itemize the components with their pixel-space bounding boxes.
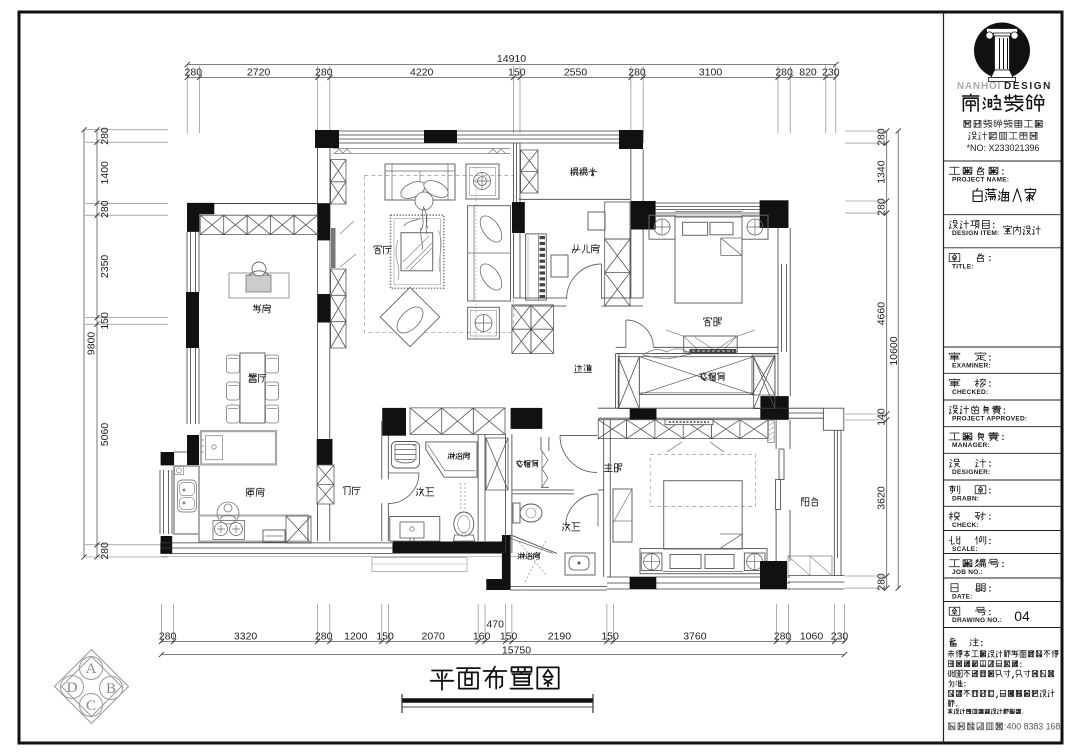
svg-text:150: 150 [601, 631, 619, 643]
svg-text:280: 280 [876, 128, 888, 146]
svg-text:150: 150 [99, 312, 111, 330]
svg-text:2350: 2350 [99, 255, 111, 279]
svg-text:150: 150 [508, 67, 526, 79]
svg-text:MANAGER:: MANAGER: [952, 442, 990, 449]
svg-text::: : [980, 638, 983, 648]
svg-text:280: 280 [99, 127, 111, 145]
svg-text:280: 280 [876, 198, 888, 216]
svg-text:D: D [67, 680, 78, 696]
svg-text:SCALE:: SCALE: [952, 546, 978, 553]
svg-text::: : [963, 680, 966, 689]
svg-text::400 8383 168: :400 8383 168 [1004, 722, 1060, 732]
svg-text:1200: 1200 [344, 631, 368, 643]
svg-text:EXAMINER:: EXAMINER: [952, 363, 991, 370]
svg-text::: : [992, 220, 995, 230]
svg-text:3320: 3320 [234, 631, 258, 643]
svg-text::: : [1019, 660, 1022, 669]
svg-text:.: . [956, 699, 958, 708]
svg-text:280: 280 [159, 631, 177, 643]
svg-text::: : [988, 253, 991, 263]
svg-text:14910: 14910 [497, 53, 526, 65]
svg-text:3100: 3100 [699, 67, 723, 79]
svg-text:DESIGN ITEM:: DESIGN ITEM: [952, 230, 999, 237]
svg-text:B: B [106, 681, 116, 697]
svg-text:TITLE:: TITLE: [952, 263, 974, 270]
svg-text:140: 140 [876, 408, 888, 426]
svg-text::: : [1001, 166, 1004, 176]
svg-text:280: 280 [99, 200, 111, 218]
svg-text:470: 470 [486, 619, 504, 631]
svg-text:C: C [86, 698, 96, 714]
svg-text:DRAWING NO.:: DRAWING NO.: [952, 617, 1002, 624]
svg-text:NANHOI: NANHOI [957, 81, 1001, 92]
svg-text:280: 280 [876, 573, 888, 591]
svg-text:4220: 4220 [410, 67, 434, 79]
svg-text::: : [1003, 405, 1006, 415]
svg-text:820: 820 [799, 67, 817, 79]
svg-text:DESIGNER:: DESIGNER: [952, 469, 990, 476]
svg-text:CHECKED:: CHECKED: [952, 389, 988, 396]
svg-text:150: 150 [376, 631, 394, 643]
svg-text::: : [988, 607, 991, 617]
svg-text:160: 160 [473, 631, 491, 643]
svg-text:280: 280 [315, 631, 333, 643]
svg-text::: : [988, 352, 991, 362]
svg-text:PROJECT APPROVED:: PROJECT APPROVED: [952, 416, 1027, 423]
svg-text::: : [988, 379, 991, 389]
svg-text:2070: 2070 [422, 631, 446, 643]
svg-text::: : [988, 583, 991, 593]
svg-text:JOB NO.:: JOB NO.: [952, 569, 983, 576]
svg-text:DATE:: DATE: [952, 594, 973, 601]
svg-text:DRABN:: DRABN: [952, 496, 979, 503]
svg-text:04: 04 [1014, 608, 1030, 624]
svg-text:280: 280 [628, 67, 646, 79]
svg-text:5060: 5060 [99, 423, 111, 447]
svg-text:CHECK:: CHECK: [952, 522, 979, 529]
svg-text:10600: 10600 [888, 336, 900, 365]
svg-text::: : [1001, 432, 1004, 442]
svg-text:280: 280 [315, 67, 333, 79]
svg-text::: : [988, 459, 991, 469]
svg-text:280: 280 [775, 67, 793, 79]
svg-text:PROJECT NAME:: PROJECT NAME: [952, 177, 1009, 184]
svg-text:2720: 2720 [247, 67, 271, 79]
svg-text::: : [988, 536, 991, 546]
svg-text::: : [988, 512, 991, 522]
svg-text:DESIGN: DESIGN [1004, 81, 1052, 92]
svg-text:150: 150 [500, 631, 518, 643]
svg-text:230: 230 [822, 67, 840, 79]
svg-text:280: 280 [185, 67, 203, 79]
svg-text:2190: 2190 [548, 631, 572, 643]
svg-text:280: 280 [774, 631, 792, 643]
svg-text:15750: 15750 [502, 645, 531, 657]
svg-text:230: 230 [831, 631, 849, 643]
svg-text:1400: 1400 [99, 161, 111, 185]
svg-text::: : [988, 485, 991, 495]
svg-text:280: 280 [99, 542, 111, 560]
svg-text:1060: 1060 [800, 631, 824, 643]
svg-text:*NO: X233021396: *NO: X233021396 [966, 143, 1039, 153]
svg-text:3760: 3760 [683, 631, 707, 643]
svg-text:3620: 3620 [876, 486, 888, 510]
svg-text:4660: 4660 [876, 302, 888, 326]
svg-text:2550: 2550 [564, 67, 588, 79]
svg-text:1340: 1340 [876, 160, 888, 184]
svg-text::: : [1001, 559, 1004, 569]
svg-text:9800: 9800 [86, 332, 98, 356]
svg-text:A: A [86, 661, 97, 677]
